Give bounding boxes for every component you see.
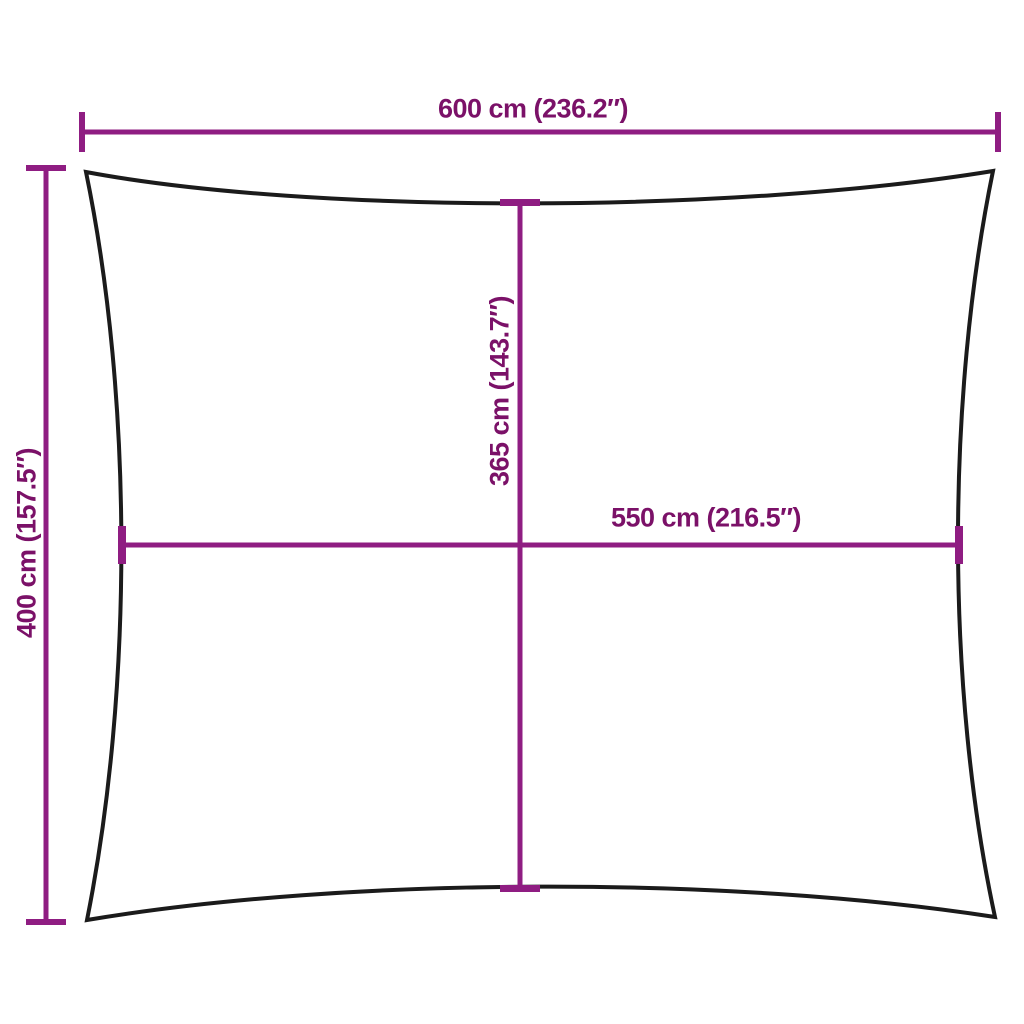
center-height-top-bar xyxy=(500,199,540,206)
top-width-dimension-label: 600 cm (236.2″) xyxy=(438,94,628,125)
center-width-dimension-label: 550 cm (216.5″) xyxy=(611,503,801,534)
center-width-right-bar xyxy=(955,526,963,564)
center-height-dimension-label: 365 cm (143.7″) xyxy=(485,296,516,486)
center-height-bottom-bar xyxy=(500,885,540,892)
center-width-left-bar xyxy=(118,526,126,564)
left-height-dimension-label: 400 cm (157.5″) xyxy=(12,448,43,638)
diagram-drawing xyxy=(0,0,1024,1024)
dimension-diagram: 600 cm (236.2″) 400 cm (157.5″) 365 cm (… xyxy=(0,0,1024,1024)
